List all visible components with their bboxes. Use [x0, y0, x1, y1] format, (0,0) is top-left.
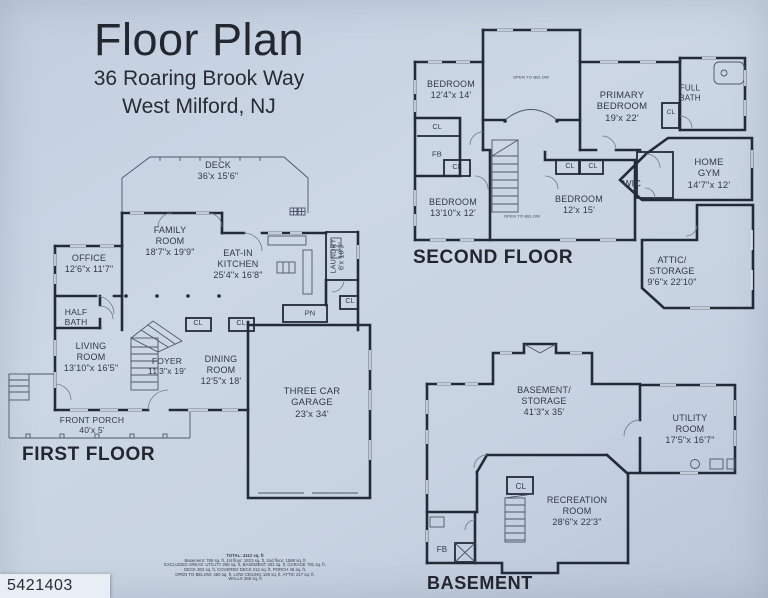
- first-room-label: DECK 36'x 15'6": [198, 160, 239, 182]
- address-line-2: West Milford, NJ: [40, 95, 358, 119]
- floor-plan-sheet: Floor Plan 36 Roaring Brook Way West Mil…: [0, 0, 768, 598]
- first-room-label: CL: [345, 298, 354, 306]
- second-room-label: PRIMARY BEDROOM 19'x 22': [597, 90, 648, 124]
- first-room-label: FOYER 11'3"x 19': [148, 356, 186, 376]
- second-room-label: CL: [565, 163, 574, 171]
- first-room-label: LIVING ROOM 13'10"x 16'5": [64, 341, 118, 373]
- utility-fixtures: [691, 459, 736, 469]
- first-room-label: LAUNDRY 6'x 10'9": [331, 239, 348, 274]
- first-room-label: HALF BATH: [65, 307, 88, 327]
- second-room-label: BEDROOM 13'10"x 12': [429, 197, 477, 219]
- second-room-label: HOME GYM 14'7"x 12': [688, 157, 731, 191]
- basement-heading: BASEMENT: [427, 573, 533, 594]
- staircase-second-floor: [492, 140, 518, 212]
- area-summary: TOTAL: 4112 sq. ft Basement: 786 sq. ft,…: [100, 554, 390, 582]
- basement-room-label: RECREATION ROOM 28'6"x 22'3": [547, 495, 607, 527]
- first-room-label: EAT-IN KITCHEN 25'4"x 16'8": [213, 248, 262, 280]
- basement-room-label: UTILITY ROOM 17'5"x 16'7": [665, 413, 714, 445]
- second-room-label: CL: [452, 164, 461, 172]
- first-room-label: PN: [305, 309, 316, 318]
- first-room-label: FRONT PORCH 40'x 5': [60, 415, 124, 435]
- second-room-label: BEDROOM 12'4"x 14': [427, 79, 475, 101]
- first-room-label: FAMILY ROOM 18'7"x 19'9": [145, 225, 194, 257]
- second-room-label: OPEN TO BELOW: [504, 215, 540, 220]
- first-room-label: CL: [193, 320, 202, 328]
- first-room-label: CL: [236, 320, 245, 328]
- address-line-1: 36 Roaring Brook Way: [40, 67, 358, 91]
- first-room-label: DINING ROOM 12'5"x 18': [201, 354, 242, 386]
- second-room-label: CL: [588, 163, 597, 171]
- second-room-label: CL: [667, 109, 676, 117]
- area-summary-line: WALLS 369 sq. ft: [100, 577, 390, 582]
- page-title: Floor Plan: [40, 16, 358, 63]
- basement-room-label: CL: [516, 482, 527, 492]
- title-block: Floor Plan 36 Roaring Brook Way West Mil…: [40, 16, 358, 119]
- basement-room-label: BASEMENT/ STORAGE 41'3"x 35': [517, 385, 571, 417]
- second-room-label: CL: [432, 124, 441, 132]
- first-floor-heading: FIRST FLOOR: [22, 444, 155, 466]
- first-room-label: OFFICE 12'6"x 11'7": [65, 253, 114, 275]
- second-room-label: OPEN TO BELOW: [513, 76, 549, 81]
- second-room-label: WIC: [623, 179, 641, 190]
- second-room-label: ATTIC/ STORAGE 9'6"x 22'10": [647, 255, 696, 287]
- basement-walls: [427, 344, 735, 573]
- photo-id-badge: 5421403: [0, 574, 110, 598]
- first-room-label: THREE CAR GARAGE 23'x 34': [284, 386, 341, 420]
- second-room-label: BEDROOM 12'x 15': [555, 194, 603, 216]
- bathtub-icon: [714, 62, 744, 84]
- grill-icon: [290, 208, 305, 215]
- second-room-label: FULL BATH: [679, 83, 701, 102]
- photo-id-number: 5421403: [0, 577, 73, 595]
- second-floor-heading: SECOND FLOOR: [413, 247, 573, 269]
- basement-room-label: FB: [437, 545, 448, 555]
- second-room-label: FB: [432, 150, 442, 159]
